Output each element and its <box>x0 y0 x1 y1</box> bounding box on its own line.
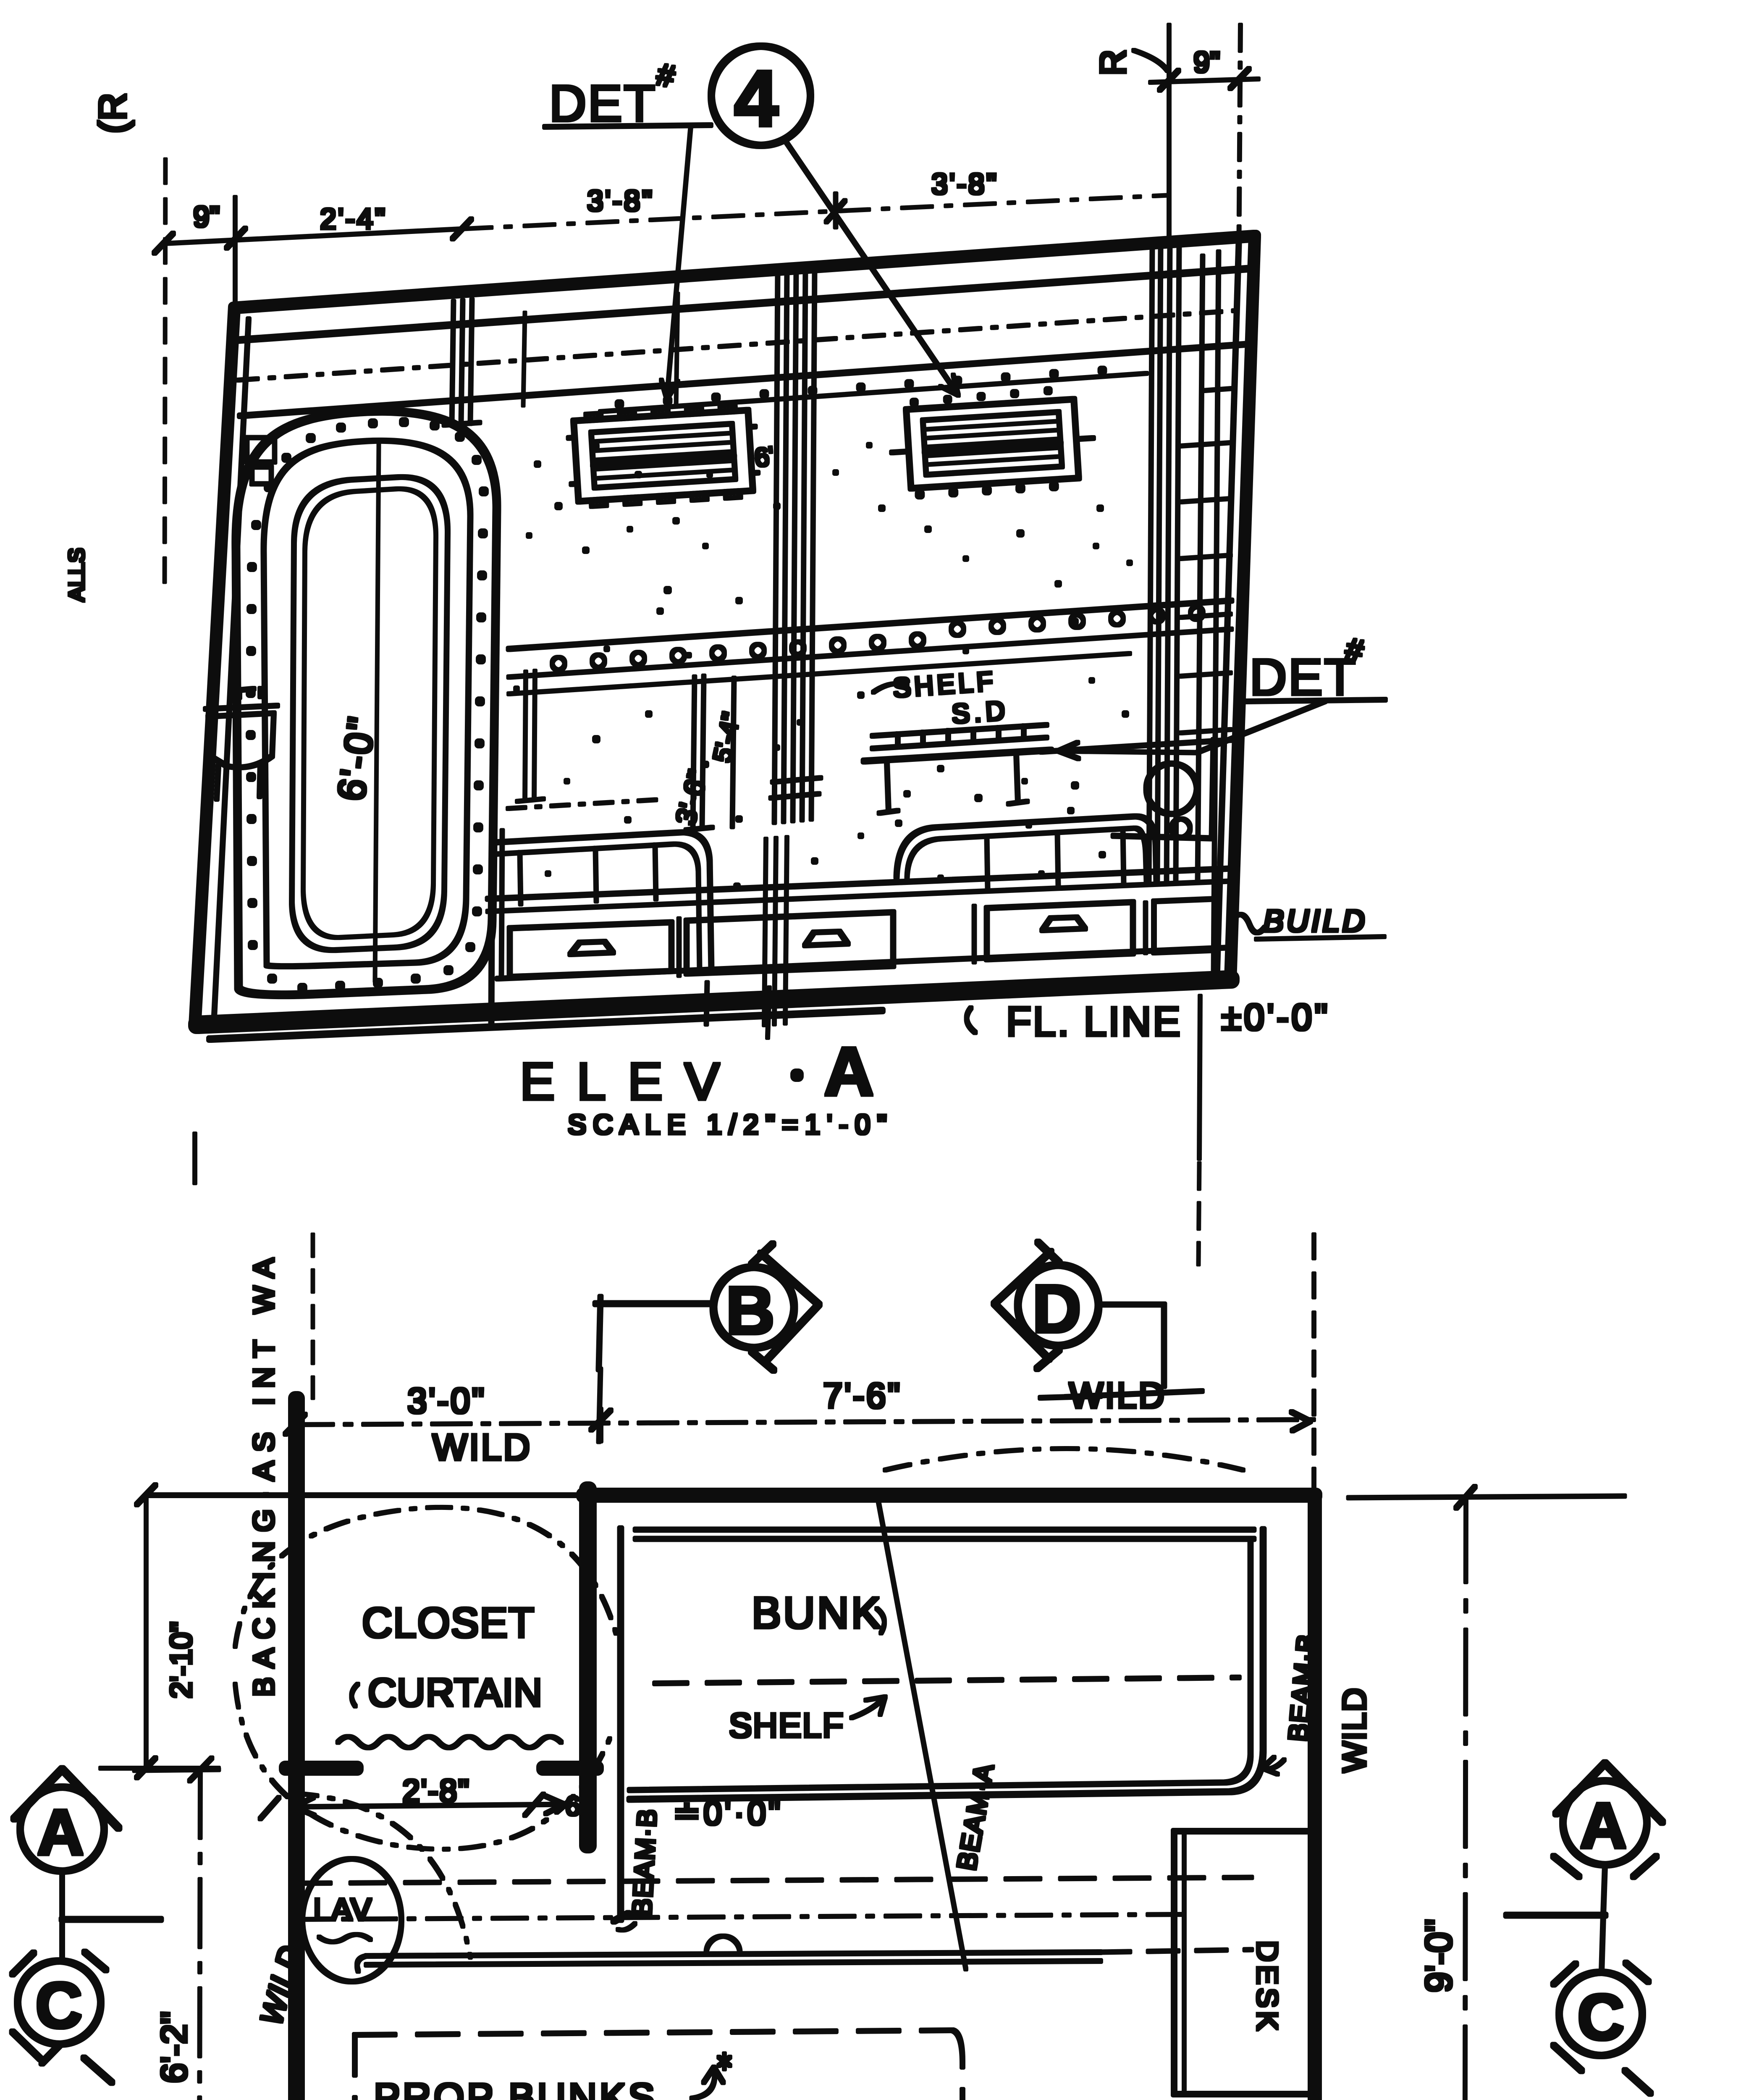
svg-text:±0'-0": ±0'-0" <box>1221 996 1330 1038</box>
svg-text:A: A <box>37 1796 84 1869</box>
svg-text:B: B <box>726 1273 775 1349</box>
svg-text:2'-10": 2'-10" <box>165 1622 198 1698</box>
svg-text:C: C <box>35 1969 82 2042</box>
svg-text:6': 6' <box>753 441 776 473</box>
svg-text:4: 4 <box>734 54 779 143</box>
svg-text:BUNK: BUNK <box>752 1588 883 1638</box>
svg-text:S.D: S.D <box>951 695 1010 729</box>
svg-text:ELEV: ELEV <box>520 1053 742 1111</box>
svg-text:A: A <box>824 1033 874 1110</box>
svg-text:2'-8": 2'-8" <box>402 1773 470 1809</box>
svg-text:≐0'·0": ≐0'·0" <box>673 1794 783 1832</box>
svg-text:A: A <box>1580 1789 1627 1862</box>
svg-text:WILD: WILD <box>1336 1687 1373 1772</box>
svg-text:SCALE 1/2"=1'-0": SCALE 1/2"=1'-0" <box>568 1109 894 1140</box>
svg-text:PROP BUNKS: PROP BUNKS <box>374 2075 657 2100</box>
svg-text:FL. LINE: FL. LINE <box>1006 998 1182 1045</box>
svg-text:BACKING·AS INT WA: BACKING·AS INT WA <box>247 1249 280 1697</box>
svg-text:BEAM·A: BEAM·A <box>951 1761 1000 1872</box>
svg-text:9": 9" <box>1193 46 1220 79</box>
svg-text:2'-4": 2'-4" <box>320 202 387 235</box>
svg-text:BEAM·B: BEAM·B <box>627 1808 662 1917</box>
svg-text:(R: (R <box>92 93 134 134</box>
svg-text:7'-6": 7'-6" <box>823 1376 902 1415</box>
svg-text:9'-0": 9'-0" <box>1418 1919 1459 1992</box>
svg-text:LAV: LAV <box>313 1892 372 1927</box>
svg-text:WILD: WILD <box>433 1426 532 1468</box>
svg-text:R: R <box>1093 50 1133 76</box>
svg-text:#: # <box>1342 631 1367 669</box>
svg-text:SHELF: SHELF <box>729 1706 844 1745</box>
svg-text:DET: DET <box>1250 648 1357 706</box>
svg-text:6'-2": 6'-2" <box>154 2011 194 2083</box>
svg-text:D: D <box>1032 1271 1081 1347</box>
svg-text:CLOSET: CLOSET <box>362 1599 535 1646</box>
svg-text:9": 9" <box>193 200 220 233</box>
svg-text:3'-8": 3'-8" <box>931 168 998 200</box>
svg-text:3'-0": 3'-0" <box>407 1381 486 1420</box>
svg-text:#: # <box>654 56 678 94</box>
svg-text:C: C <box>1577 1981 1624 2053</box>
svg-text:DET: DET <box>549 75 657 132</box>
svg-text:3'-6": 3'-6" <box>669 767 713 828</box>
svg-text:ALLS: ALLS <box>65 548 89 601</box>
svg-text:BUILD: BUILD <box>1263 903 1367 938</box>
svg-text:CURTAIN: CURTAIN <box>368 1670 543 1714</box>
svg-text:5'-4": 5'-4" <box>708 710 745 765</box>
svg-text:DESK: DESK <box>1251 1940 1284 2034</box>
svg-text:6: 6 <box>565 1791 580 1821</box>
svg-text:3'-8": 3'-8" <box>587 184 654 217</box>
